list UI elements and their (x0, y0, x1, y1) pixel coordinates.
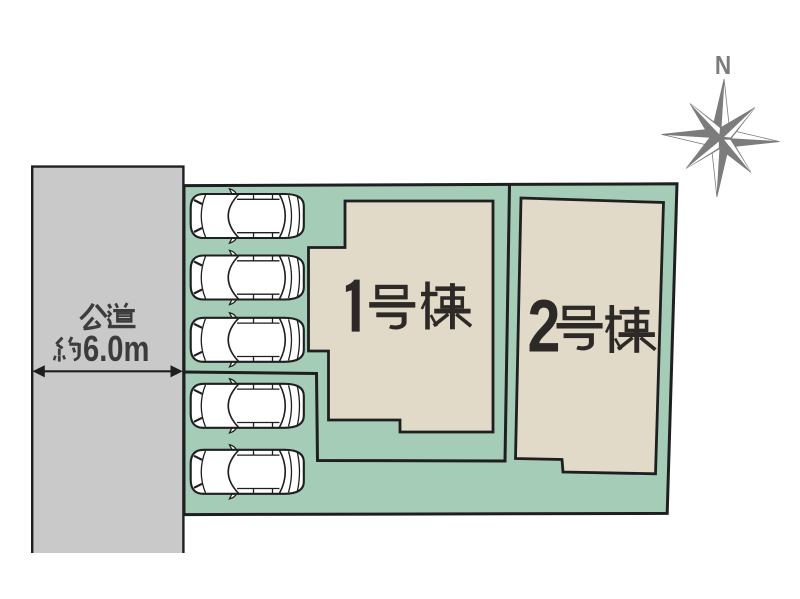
svg-text:6.0m: 6.0m (83, 328, 149, 369)
svg-text:2: 2 (528, 285, 561, 368)
svg-text:N: N (715, 52, 731, 81)
